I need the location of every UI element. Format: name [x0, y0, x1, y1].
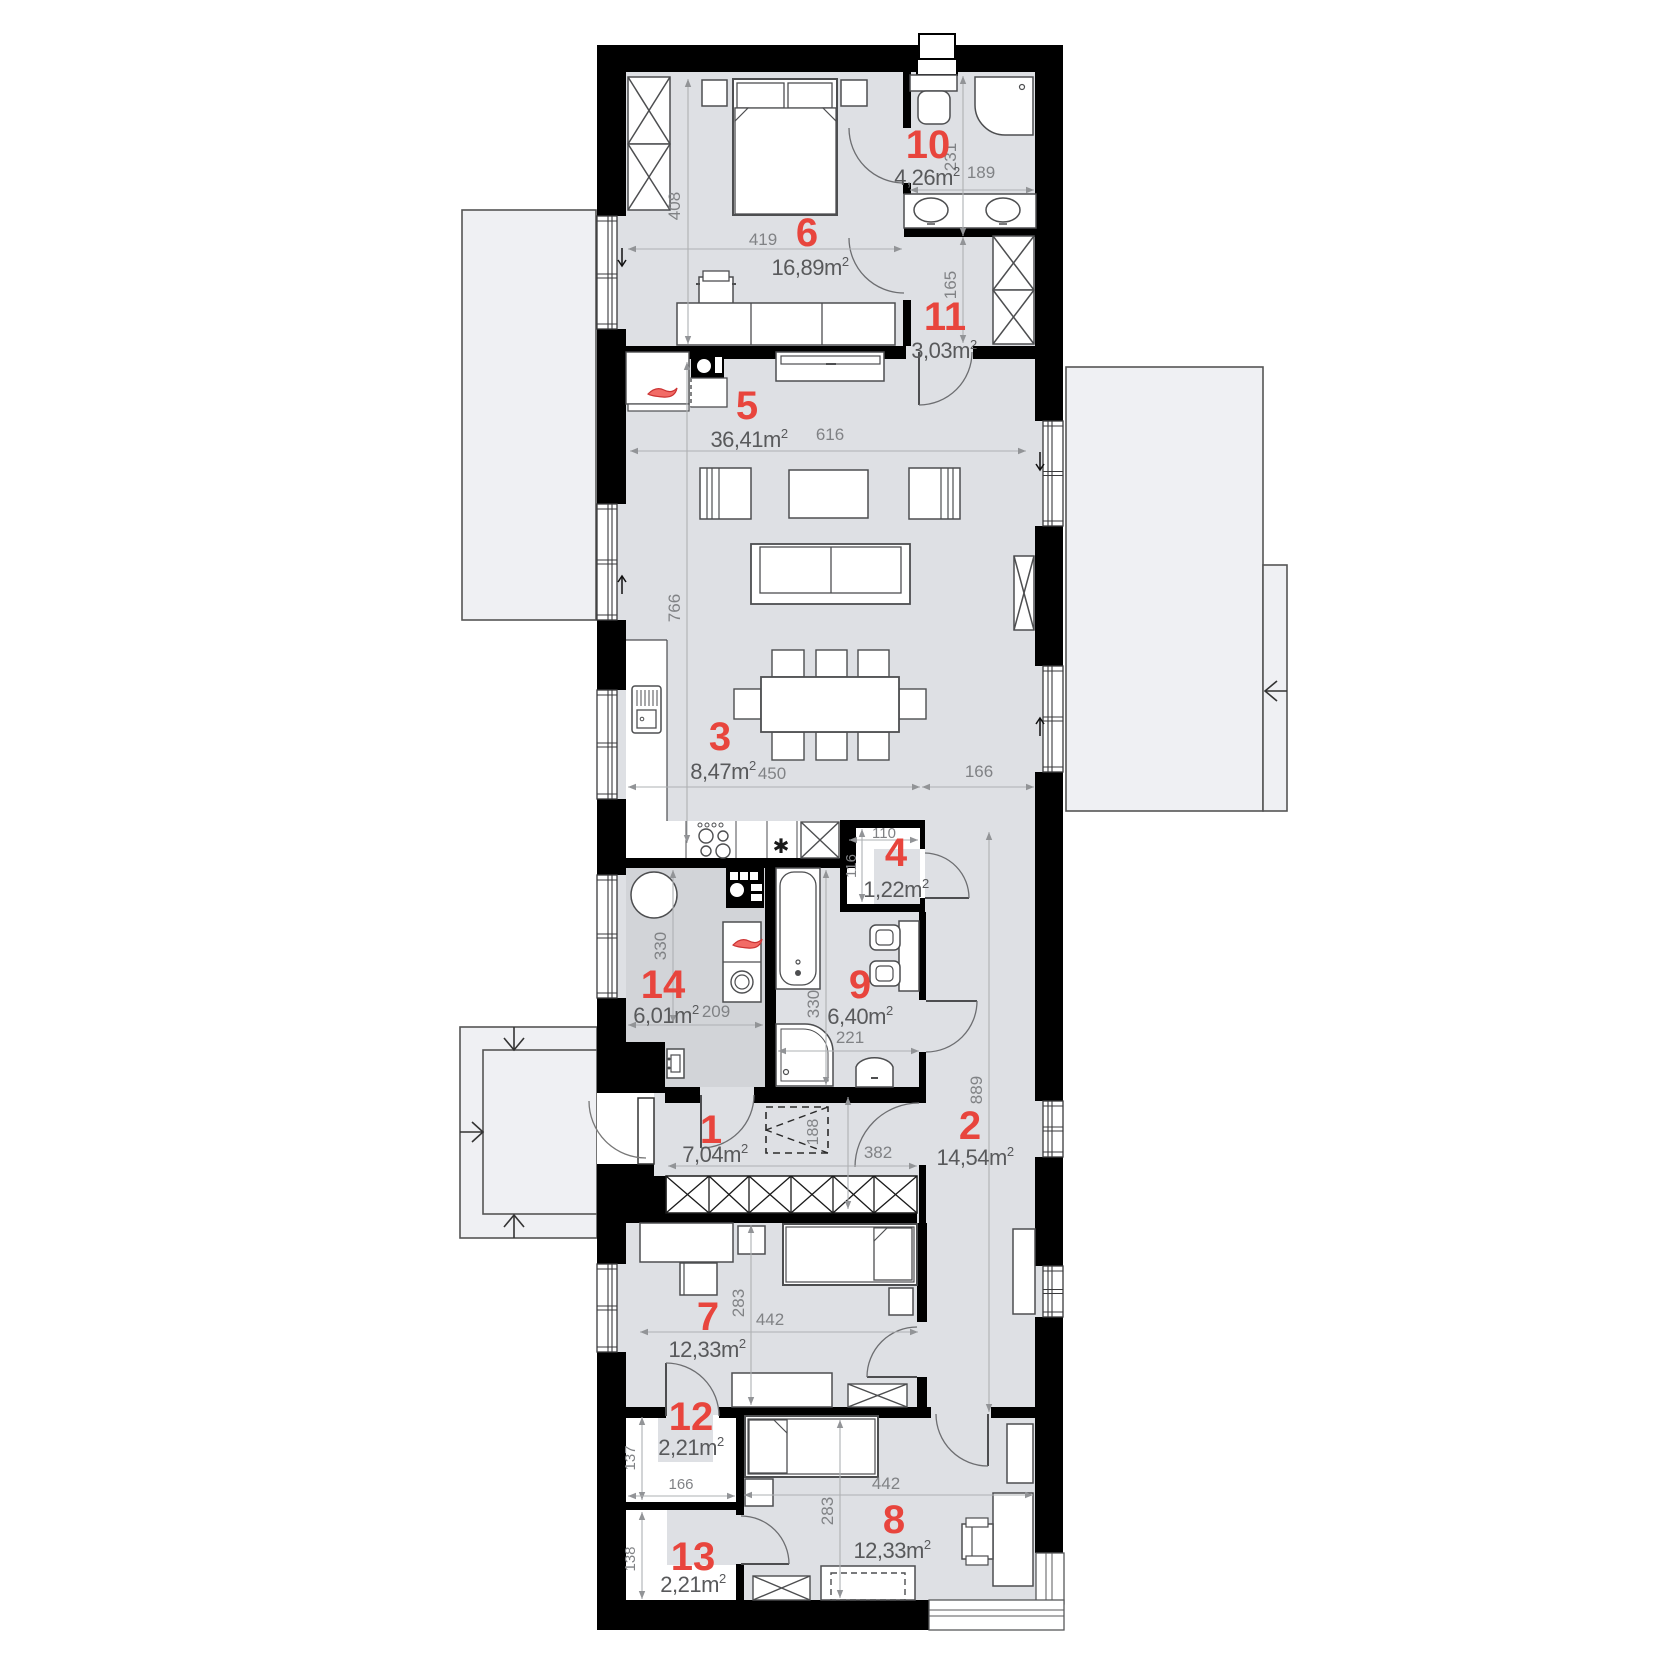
svg-text:766: 766 — [665, 594, 684, 622]
svg-text:5: 5 — [736, 384, 758, 428]
svg-text:4: 4 — [885, 831, 908, 875]
svg-text:4,26m2: 4,26m2 — [894, 164, 960, 190]
svg-text:6,40m2: 6,40m2 — [827, 1003, 893, 1029]
svg-text:6,01m2: 6,01m2 — [633, 1002, 699, 1028]
svg-text:1,22m2: 1,22m2 — [863, 876, 929, 902]
svg-text:9: 9 — [849, 963, 871, 1007]
svg-text:166: 166 — [668, 1476, 693, 1493]
svg-text:2: 2 — [959, 1104, 981, 1148]
svg-text:889: 889 — [967, 1076, 986, 1104]
svg-text:2,21m2: 2,21m2 — [660, 1571, 726, 1597]
svg-text:330: 330 — [651, 932, 670, 960]
svg-text:330: 330 — [804, 990, 823, 1018]
svg-text:3,03m2: 3,03m2 — [911, 337, 977, 363]
svg-text:12: 12 — [669, 1395, 714, 1439]
svg-text:419: 419 — [749, 230, 777, 249]
svg-text:7,04m2: 7,04m2 — [682, 1141, 748, 1167]
svg-text:138: 138 — [622, 1546, 639, 1571]
svg-text:16,89m2: 16,89m2 — [771, 254, 848, 280]
svg-text:616: 616 — [816, 425, 844, 444]
svg-text:283: 283 — [818, 1497, 837, 1525]
svg-text:8: 8 — [883, 1498, 905, 1542]
svg-text:283: 283 — [729, 1289, 748, 1317]
svg-text:450: 450 — [758, 764, 786, 783]
svg-text:209: 209 — [702, 1002, 730, 1021]
svg-text:14,54m2: 14,54m2 — [936, 1144, 1013, 1170]
svg-text:189: 189 — [967, 163, 995, 182]
svg-text:✱: ✱ — [773, 836, 790, 858]
svg-text:2,21m2: 2,21m2 — [658, 1434, 724, 1460]
svg-text:3: 3 — [709, 715, 731, 759]
svg-text:166: 166 — [965, 762, 993, 781]
svg-text:11: 11 — [924, 295, 966, 339]
svg-text:188: 188 — [805, 1119, 822, 1146]
svg-text:14: 14 — [641, 963, 686, 1007]
svg-text:6: 6 — [796, 211, 818, 255]
svg-text:442: 442 — [756, 1310, 784, 1329]
svg-text:137: 137 — [622, 1445, 639, 1470]
svg-text:408: 408 — [665, 192, 684, 220]
svg-text:221: 221 — [836, 1028, 864, 1047]
svg-text:36,41m2: 36,41m2 — [710, 426, 787, 452]
svg-text:382: 382 — [864, 1143, 892, 1162]
svg-text:12,33m2: 12,33m2 — [668, 1336, 745, 1362]
svg-text:442: 442 — [872, 1474, 900, 1493]
svg-text:116: 116 — [843, 854, 860, 878]
svg-text:10: 10 — [906, 123, 951, 167]
svg-text:12,33m2: 12,33m2 — [853, 1537, 930, 1563]
svg-text:7: 7 — [697, 1295, 719, 1339]
svg-text:8,47m2: 8,47m2 — [690, 758, 756, 784]
